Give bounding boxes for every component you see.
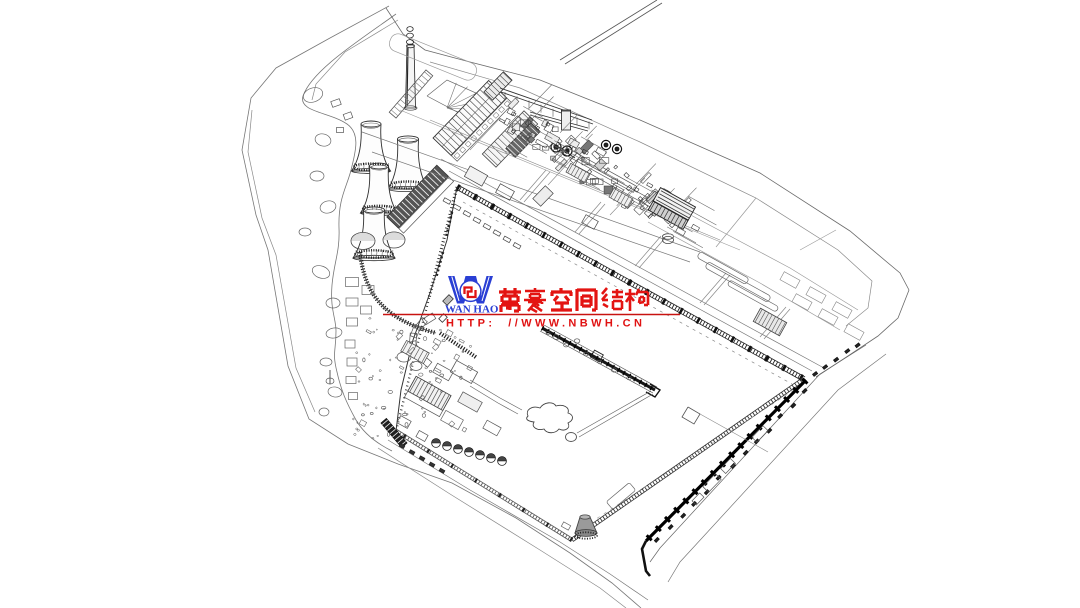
svg-text:WAN HAO: WAN HAO — [445, 303, 499, 315]
svg-text:HTTP: //WWW.NBWH.CN: HTTP: //WWW.NBWH.CN — [446, 318, 645, 330]
